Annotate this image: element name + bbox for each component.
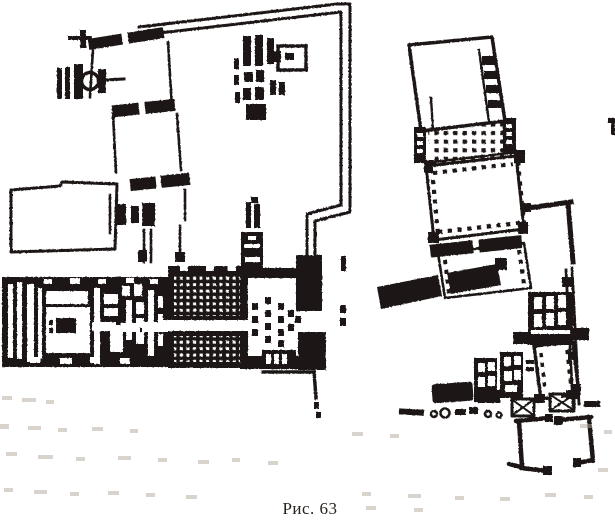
gate-block-1: [512, 399, 534, 416]
enclosure-corner: [523, 202, 573, 262]
festival-hall-block: [2, 277, 168, 367]
sphinx-avenue: [399, 390, 600, 418]
figure-caption: Рис. 63: [250, 499, 370, 519]
processional-axis: [57, 27, 190, 262]
axis-shrine: [241, 197, 263, 274]
sacred-lake: [11, 182, 117, 252]
small-column-temple: [234, 35, 306, 120]
peristyle-court: [424, 150, 528, 243]
right-temple-complex: [377, 37, 615, 475]
south-enclosures: [509, 414, 593, 475]
great-court: [240, 197, 346, 418]
south-wall: [263, 372, 321, 418]
left-temple-complex: [2, 4, 350, 418]
sanctuary-court: [409, 37, 505, 131]
scanned-book-page: Рис. 63: [0, 0, 615, 528]
hypostyle-hall: [163, 266, 251, 368]
triple-shrine: [513, 292, 589, 403]
kiosk-columns: [252, 297, 301, 347]
edge-fragment: [608, 118, 615, 135]
temple-plan-figure: [0, 0, 615, 528]
